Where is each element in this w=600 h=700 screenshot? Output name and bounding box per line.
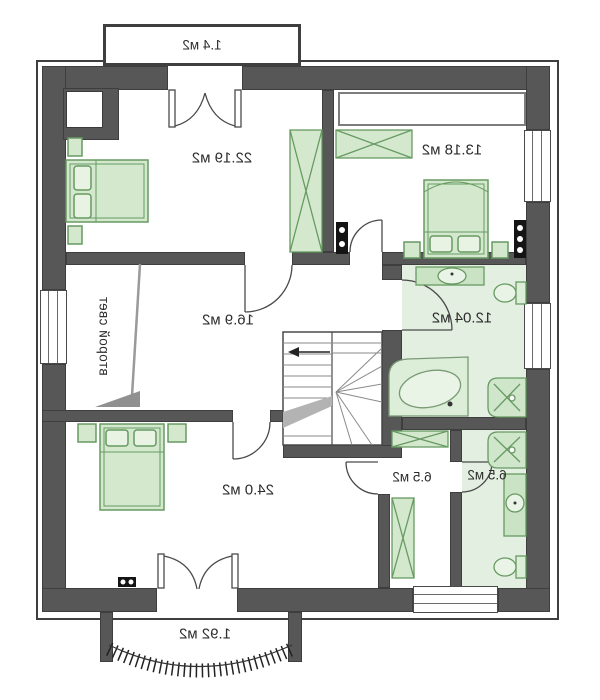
label-bedroom-top-left: 22.19 м2 [192, 150, 252, 167]
window-right-upper [524, 130, 551, 202]
wall-bottom-b [237, 588, 413, 612]
label-balcony-bottom: 1.92 м2 [179, 626, 231, 643]
wall-bath-left-b [382, 330, 402, 458]
label-balcony-top: 1.4 м2 [182, 38, 221, 53]
label-bedroom-top-right: 13.18 м2 [422, 142, 482, 159]
wall-mid-a [66, 252, 245, 265]
balcony-stub-right [288, 612, 302, 662]
chimney-shaft [66, 91, 103, 128]
wall-bath-bottom [402, 417, 526, 430]
window-right-lower [524, 303, 551, 369]
wall-dressing-left [378, 494, 390, 588]
label-hall: 16.9 м2 [202, 312, 254, 329]
wall-mid-b [292, 252, 350, 265]
wall-stair-bottom [283, 445, 402, 458]
label-second-light: второй свет [97, 296, 112, 375]
wall-bottom-a [42, 588, 157, 612]
window-bottom [413, 586, 498, 613]
wc-floor [462, 430, 526, 588]
label-bedroom-bottom: 24.0 м2 [222, 482, 274, 499]
wall-right-a [526, 66, 550, 130]
wall-bedrooms-divider [322, 90, 334, 252]
wall-wc-left-a [450, 430, 462, 462]
wall-top-right [242, 66, 550, 90]
attic-niche [338, 92, 526, 126]
wall-wc-left-b [450, 492, 462, 588]
wall-bath-left-a [382, 265, 402, 280]
window-left [40, 290, 67, 364]
label-bathroom: 12.04 м2 [432, 310, 492, 327]
label-wc: 6.5 м2 [467, 468, 506, 483]
wall-bottom-c [498, 588, 550, 612]
wall-left-lower [42, 364, 66, 612]
wall-right-b [526, 202, 550, 303]
bathroom-floor [402, 265, 526, 417]
wall-hall-bottom-a [42, 410, 233, 422]
balcony-railing [109, 645, 292, 671]
label-dressing: 6.5 м2 [392, 470, 431, 485]
floor-plan: 1.4 м2 22.19 м2 13.18 м2 второй свет 16.… [0, 0, 600, 700]
balcony-stub-left [100, 612, 113, 662]
wall-right-c [526, 369, 550, 612]
wall-mid-c [382, 252, 526, 265]
wall-hall-bottom-b [270, 410, 283, 422]
